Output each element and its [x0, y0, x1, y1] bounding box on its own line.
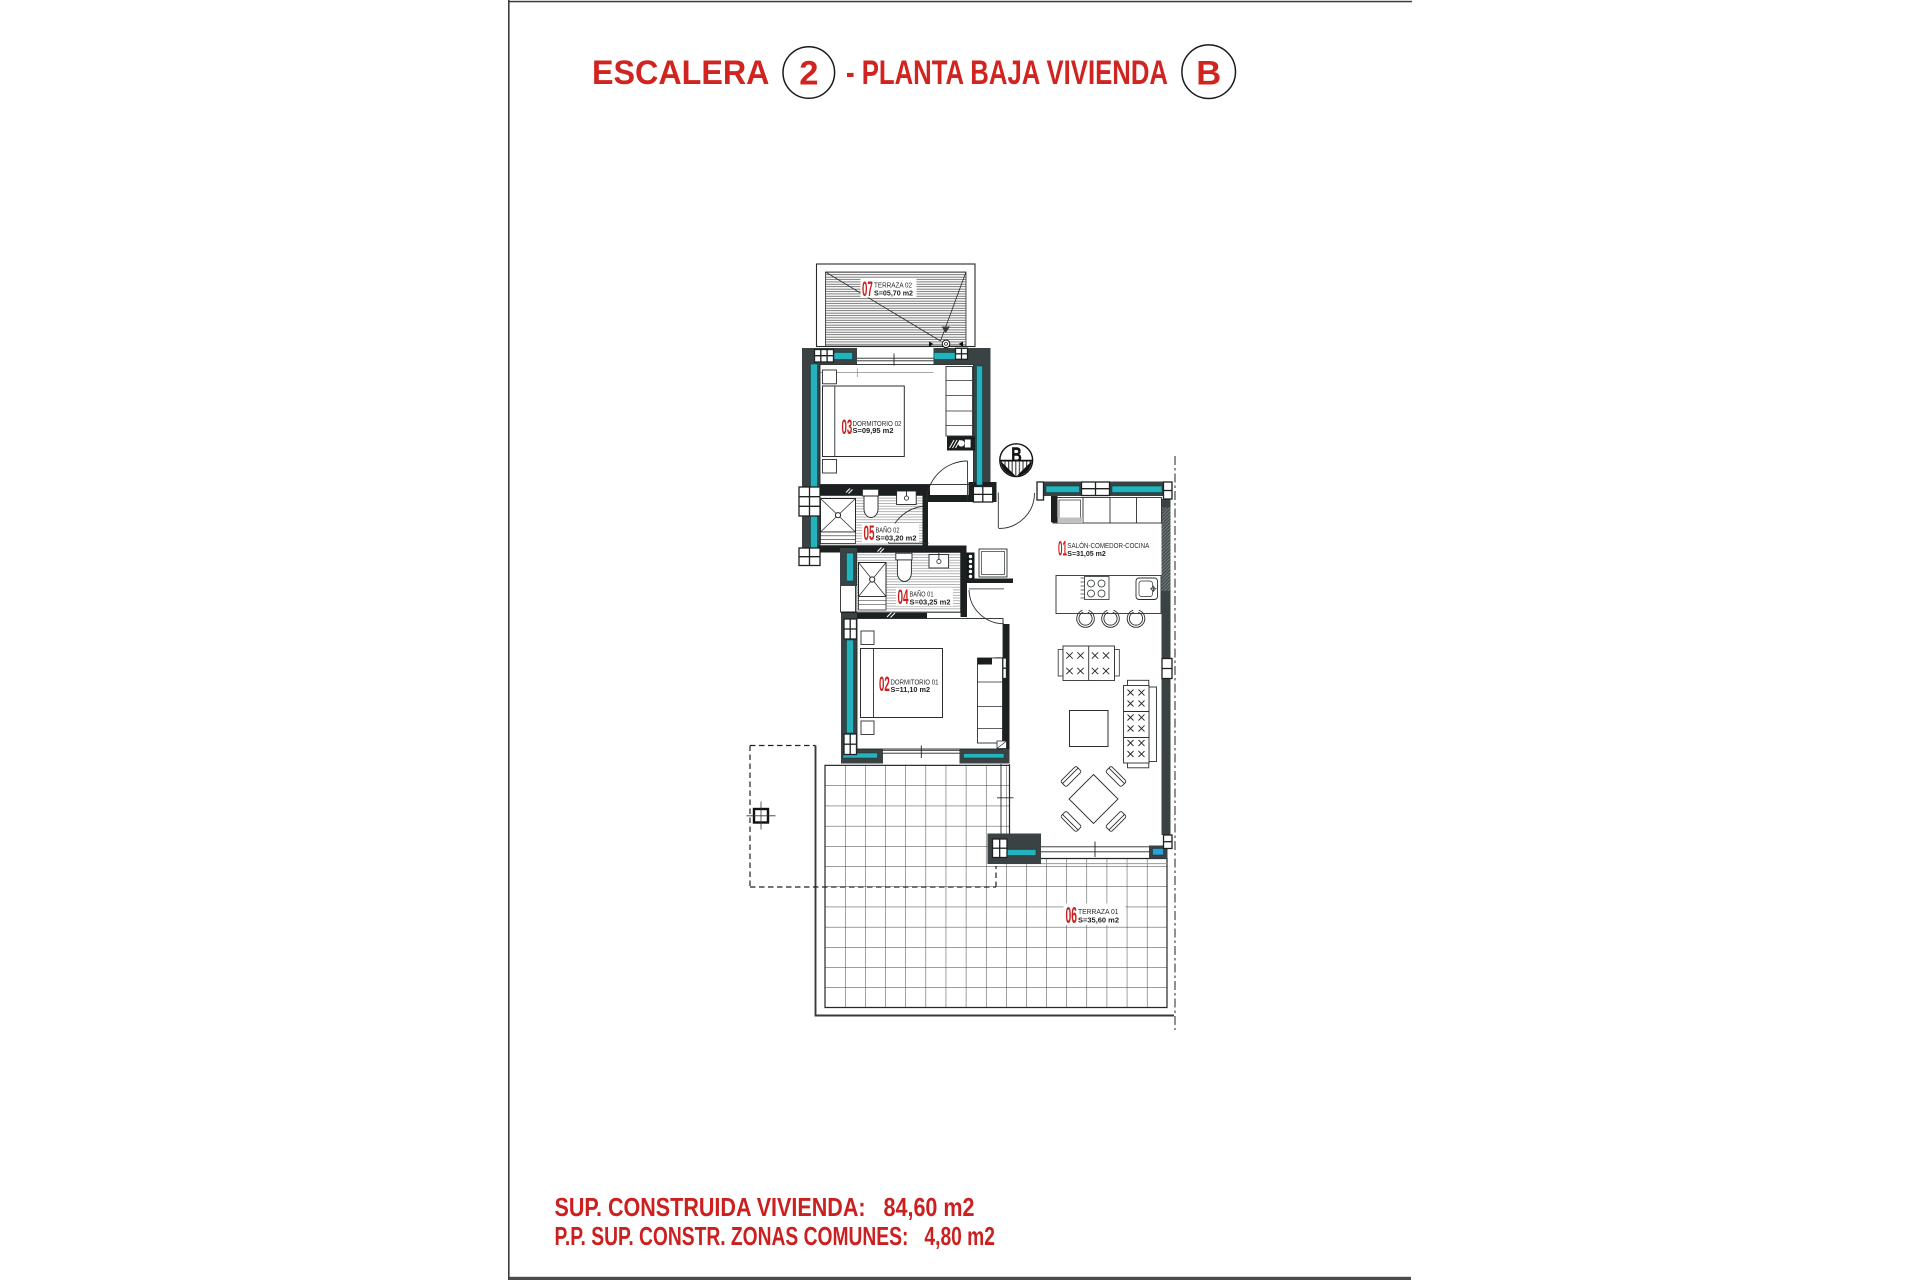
svg-text:ESCALERA: ESCALERA [592, 54, 770, 92]
svg-text:04: 04 [898, 585, 909, 609]
svg-text:03: 03 [842, 415, 853, 439]
svg-text:S=11,10 m2: S=11,10 m2 [891, 685, 931, 694]
svg-text:S=09,95 m2: S=09,95 m2 [853, 426, 894, 435]
svg-text:S=31,05 m2: S=31,05 m2 [1067, 549, 1106, 558]
svg-text:07: 07 [862, 277, 873, 301]
svg-text:SUP. CONSTRUIDA VIVIENDA: 84: SUP. CONSTRUIDA VIVIENDA: 84,60 m2 [555, 1192, 975, 1222]
svg-text:- PLANTA BAJA VIVIENDA: - PLANTA BAJA VIVIENDA [846, 54, 1168, 92]
svg-text:2: 2 [799, 55, 818, 93]
svg-text:06: 06 [1066, 902, 1078, 928]
svg-text:B: B [1196, 55, 1221, 93]
svg-text:05: 05 [864, 521, 875, 545]
svg-text:S=05,70 m2: S=05,70 m2 [874, 289, 913, 298]
svg-text:S=03,20 m2: S=03,20 m2 [876, 533, 917, 542]
svg-text:S=03,25 m2: S=03,25 m2 [910, 597, 951, 606]
svg-text:01: 01 [1058, 537, 1067, 561]
svg-text:S=35,60 m2: S=35,60 m2 [1078, 915, 1119, 924]
svg-text:P.P. SUP. CONSTR. ZONAS COMUNE: P.P. SUP. CONSTR. ZONAS COMUNES: 4,80 m2 [555, 1221, 996, 1251]
svg-text:02: 02 [879, 672, 890, 696]
